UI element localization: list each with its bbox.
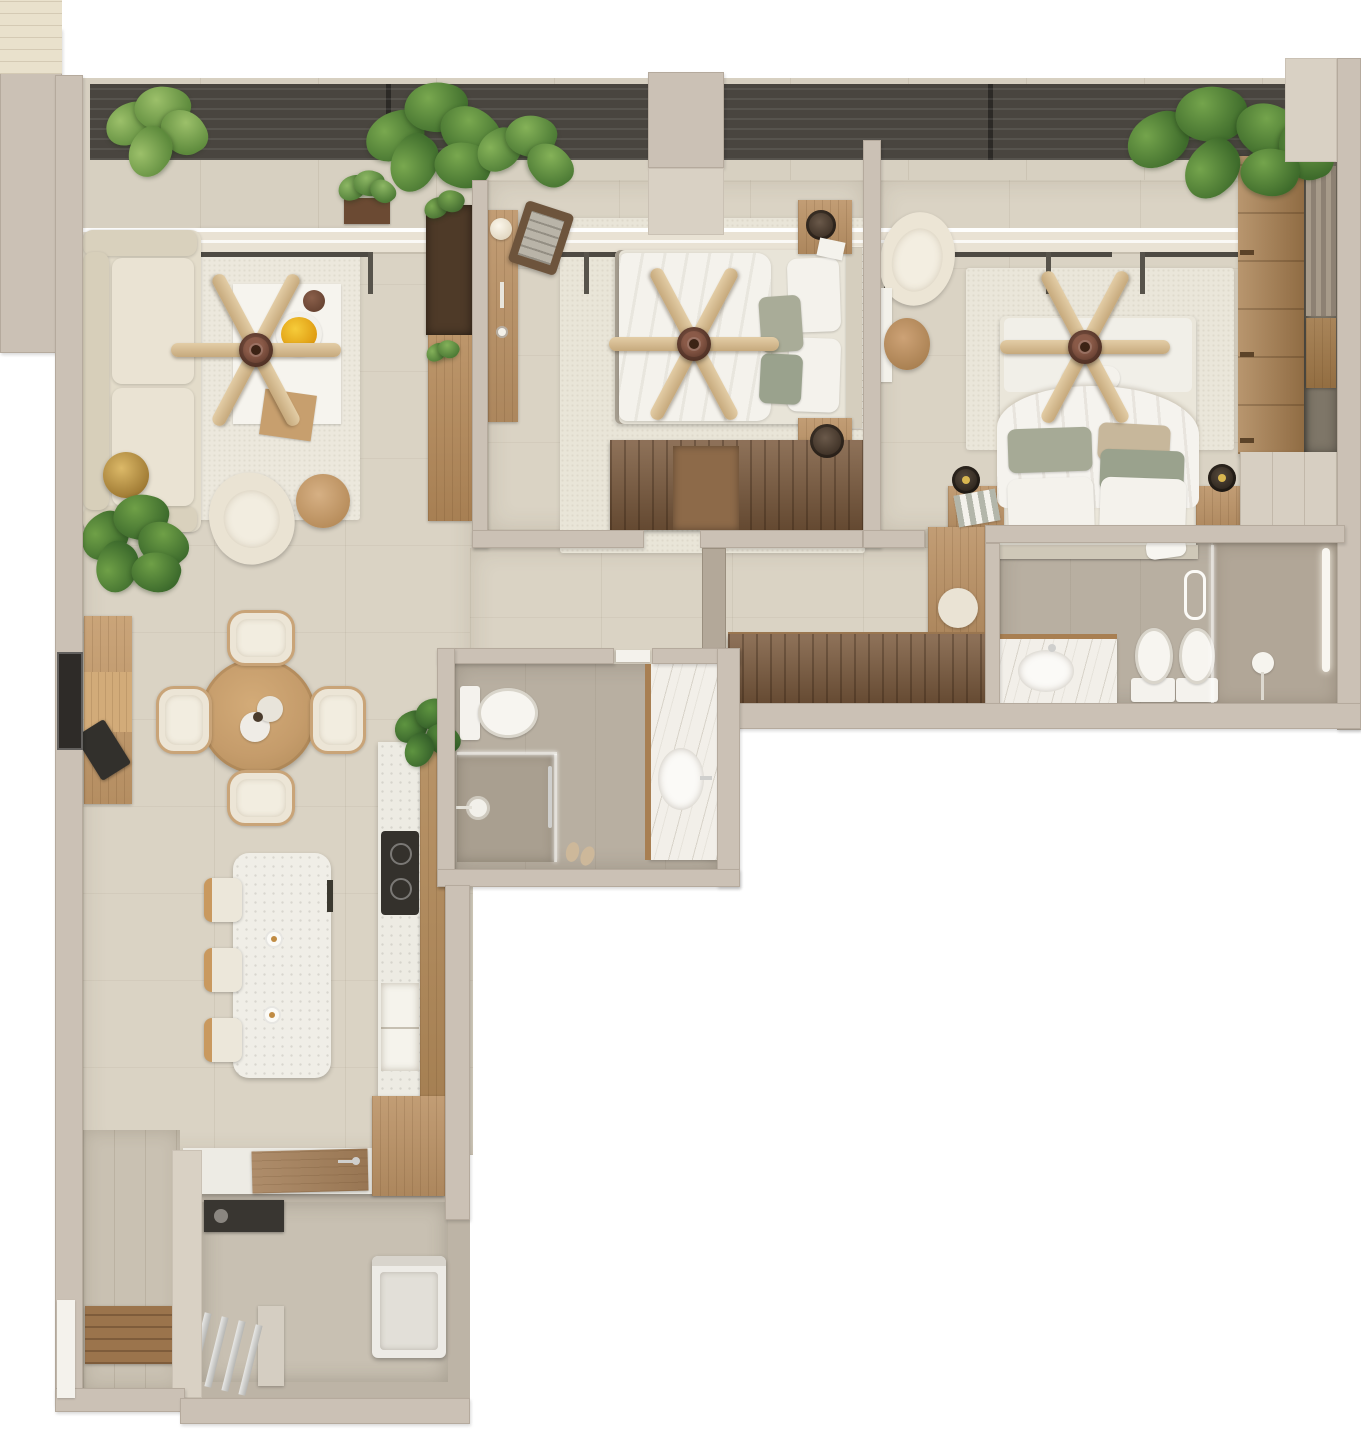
bar-stool [204, 1018, 242, 1062]
utility-ledge [258, 1306, 284, 1386]
bath2-vanity-wood-edge [645, 664, 651, 860]
washer-top-seam [372, 1256, 446, 1266]
wall-bedroom2-south-a [472, 530, 644, 548]
wall-utility-south [180, 1398, 470, 1424]
hanging-clothes [1306, 166, 1336, 316]
wall-utility-west [172, 1150, 202, 1398]
bath-floor-lamp [1252, 652, 1274, 674]
cutting-board [251, 1148, 368, 1193]
wall-bedroom2-master [863, 140, 881, 548]
bath2-shower-glass-v [554, 754, 557, 862]
wardrobe-lower-cabinet [1240, 452, 1338, 530]
nightstand-speaker [810, 424, 844, 458]
light-strip [1322, 548, 1330, 672]
bath2-toilet-bowl [478, 688, 538, 738]
master-lamp-gold-dot [1218, 474, 1226, 482]
wardrobe-handle [1240, 438, 1254, 443]
bedroom2-pillow-sage [759, 353, 804, 405]
sink-niche [381, 983, 419, 1071]
master-wardrobe [1238, 156, 1304, 454]
wall-hall-pier [702, 548, 726, 650]
wall-right [1337, 58, 1361, 730]
masterbath-shower-floor [1213, 543, 1337, 705]
washer-lid [380, 1272, 438, 1350]
shower-towel-rail [1184, 570, 1206, 620]
fan-hub [677, 327, 711, 361]
door-jamb [1140, 252, 1145, 294]
dining-chair-north [227, 610, 295, 666]
vanity-wood-edge [997, 634, 1117, 639]
wall-masterbath-west [985, 543, 1000, 705]
island-tap-center [269, 1012, 275, 1018]
entry-door-leaf [57, 1300, 75, 1398]
stone-wall-cap [0, 0, 62, 74]
exterior-wall-left-upper [0, 28, 62, 353]
dressing-stool [938, 588, 978, 628]
master-lamp-gold-dot [962, 476, 970, 484]
bidet-bowl [1179, 628, 1215, 684]
kitchen-cabinet-block [372, 1096, 445, 1196]
floor-plan [0, 0, 1361, 1429]
wall-bath2-south [437, 869, 740, 887]
bath2-sink-faucet [700, 776, 712, 780]
island-tap-center [271, 936, 277, 942]
wall-pier-balcony [648, 72, 724, 168]
dining-chair-west [156, 686, 212, 754]
wall-corner-topright [1285, 58, 1337, 162]
wall-bath2-west [437, 648, 455, 887]
entry-wood-mat [85, 1306, 175, 1364]
fan-hub [1068, 330, 1102, 364]
wall-bath2-north-a [437, 648, 614, 664]
wardrobe-handle [1240, 352, 1254, 357]
nightstand-speaker [806, 210, 836, 240]
bath2-shower-arm [456, 806, 472, 809]
dining-chair-south [227, 770, 295, 826]
shower-glass-partition [1211, 545, 1214, 703]
bar-stool [204, 948, 242, 992]
wall-living-bedroom2 [472, 180, 488, 548]
dining-chair-east [310, 686, 366, 754]
bath2-door-threshold [616, 650, 650, 662]
wall-bedroom2-south-b [700, 530, 863, 548]
bath2-shower-glass-h [457, 752, 557, 755]
utility-appliance [204, 1200, 284, 1232]
desk-cup [496, 326, 508, 338]
closet-shelf-box [1306, 318, 1336, 388]
master-side-table [884, 318, 930, 370]
wall-south-band [718, 703, 1361, 729]
tv-unit-console [428, 335, 472, 521]
appliance-knob [214, 1209, 228, 1223]
fan-hub [239, 333, 273, 367]
door-jamb [584, 252, 589, 294]
masterbath-sink [1018, 650, 1074, 692]
bath2-shower-handle [548, 766, 552, 828]
side-table-round [296, 474, 350, 528]
island-handle [327, 880, 333, 912]
washing-machine [372, 1256, 446, 1358]
art-photo [518, 211, 565, 265]
tv-shelf-unit [426, 205, 472, 335]
dresser-recess [673, 446, 739, 530]
wall-masterbath-north [985, 525, 1345, 543]
peninsula-faucet-base [352, 1157, 360, 1165]
kitchen-island [233, 853, 331, 1078]
master-pillow-sage [1007, 427, 1092, 474]
wardrobe-handle [1240, 250, 1254, 255]
wall-bath2-east [717, 648, 740, 887]
bath2-sink [658, 748, 704, 810]
sideboard-door [84, 672, 132, 732]
toilet-bowl [1135, 628, 1173, 684]
bath2-toilet-tank [460, 686, 480, 740]
wall-master-south [863, 530, 925, 548]
cooktop-burner [390, 878, 412, 900]
bar-stool [204, 878, 242, 922]
hallway-cabinet [728, 634, 985, 706]
decor-ball [303, 290, 325, 312]
cooktop-burner [390, 843, 412, 865]
desk-lamp [490, 218, 512, 240]
sink-faucet [1048, 644, 1056, 652]
wall-kitchen-east [445, 885, 470, 1220]
door-jamb [368, 252, 373, 294]
bedroom2-headboard [846, 248, 862, 428]
wall-tv-niche [57, 652, 83, 750]
sofa-seat [112, 258, 194, 384]
brass-pouf [103, 452, 149, 498]
desk-pen [500, 282, 504, 308]
wall-pier-balcony-face [648, 168, 724, 235]
bath-floor-lamp-stem [1261, 672, 1264, 700]
table-centerpiece [253, 712, 263, 722]
